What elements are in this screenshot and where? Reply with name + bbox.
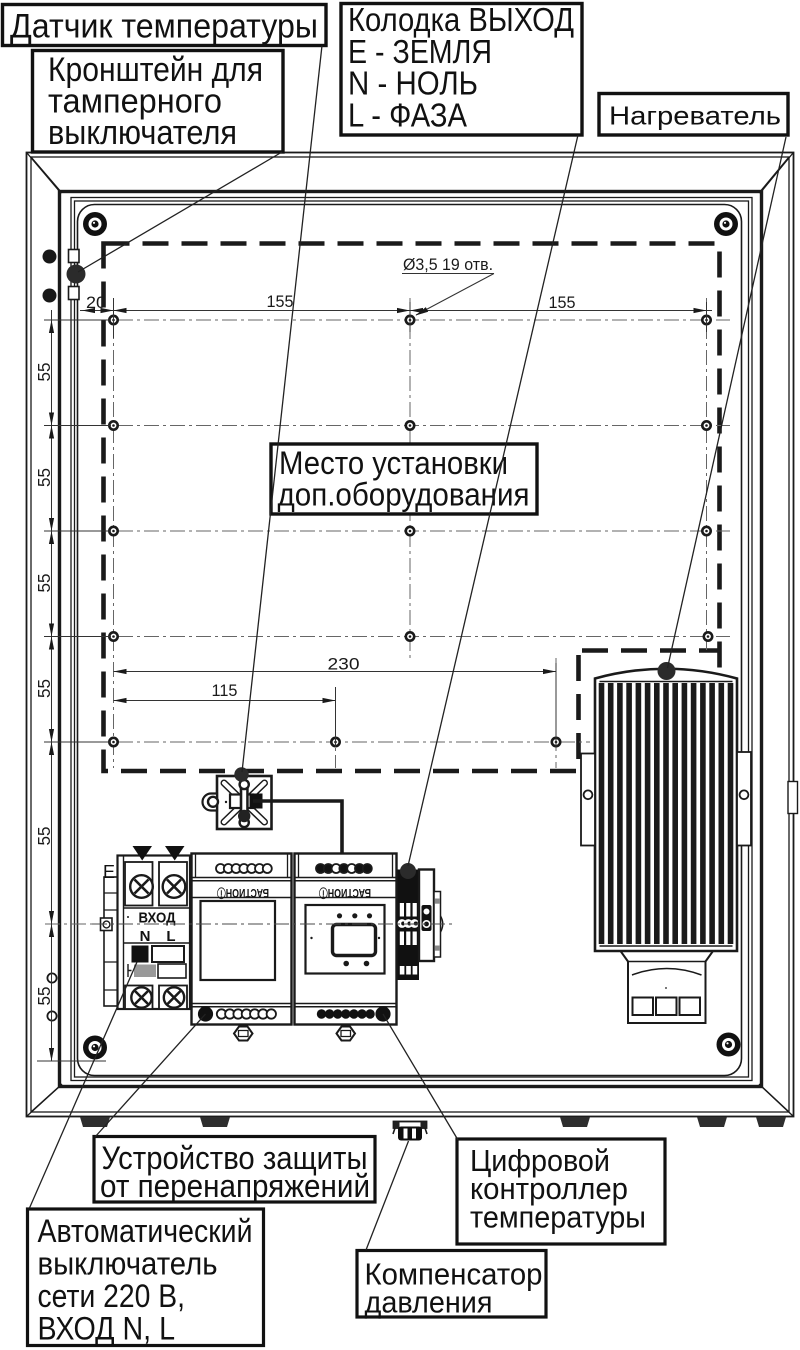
svg-text:55: 55 xyxy=(34,574,54,593)
svg-text:L - ФАЗА: L - ФАЗА xyxy=(348,97,467,134)
svg-text:ВХОД N, L: ВХОД N, L xyxy=(38,1311,176,1347)
svg-text:температуры: температуры xyxy=(470,1200,646,1235)
svg-text:выключатель: выключатель xyxy=(38,1246,218,1282)
svg-text:Автоматический: Автоматический xyxy=(38,1213,253,1249)
svg-text:Нагреватель: Нагреватель xyxy=(609,101,781,131)
svg-text:от перенапряжений: от перенапряжений xyxy=(100,1168,370,1204)
svg-text:Датчик температуры: Датчик температуры xyxy=(10,8,318,46)
svg-text:55: 55 xyxy=(34,679,54,698)
svg-text:230: 230 xyxy=(328,655,360,674)
svg-text:N: N xyxy=(140,928,151,945)
svg-text:E: E xyxy=(103,862,115,882)
svg-text:55: 55 xyxy=(34,827,54,846)
svg-text:БАСТИОНⓘ: БАСТИОНⓘ xyxy=(319,886,371,900)
svg-text:L: L xyxy=(166,928,175,945)
svg-text:давления: давления xyxy=(365,1285,493,1320)
svg-text:55: 55 xyxy=(34,363,54,382)
svg-text:155: 155 xyxy=(267,292,294,311)
svg-text:155: 155 xyxy=(549,293,576,312)
svg-text:БАСТИОНⓘ: БАСТИОНⓘ xyxy=(217,886,269,900)
svg-text:55: 55 xyxy=(34,987,54,1006)
svg-text:20: 20 xyxy=(86,293,106,312)
svg-text:сети 220 В,: сети 220 В, xyxy=(38,1278,186,1314)
svg-text:55: 55 xyxy=(34,468,54,487)
svg-text:выключателя: выключателя xyxy=(48,114,237,152)
svg-text:Ø3,5 19 отв.: Ø3,5 19 отв. xyxy=(403,256,493,274)
svg-text:115: 115 xyxy=(212,681,238,700)
